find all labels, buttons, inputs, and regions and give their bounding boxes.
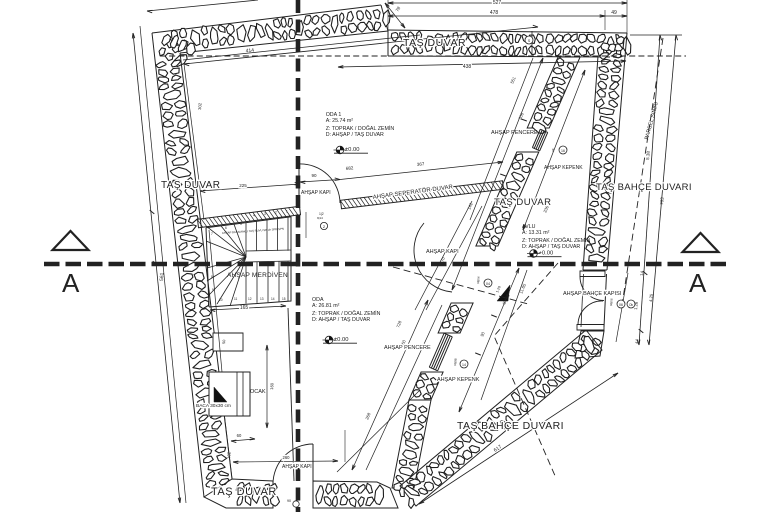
svg-text:11: 11 [234, 297, 238, 301]
svg-text:1: 1 [286, 209, 288, 213]
svg-text:Z: TOPRAK / DOĞAL ZEMİN: Z: TOPRAK / DOĞAL ZEMİN [326, 125, 395, 132]
svg-text:AHŞAP KAPI: AHŞAP KAPI [426, 249, 459, 255]
svg-text:16: 16 [561, 149, 565, 153]
svg-text:AHŞAP KAPI: AHŞAP KAPI [301, 190, 331, 196]
svg-text:9: 9 [212, 288, 214, 292]
svg-text:A: 25.74 m²: A: 25.74 m² [326, 118, 354, 124]
svg-text:478: 478 [490, 10, 499, 16]
svg-text:438: 438 [463, 64, 472, 70]
svg-text:A: 13.31 m²: A: 13.31 m² [522, 230, 550, 236]
svg-text:TAŞ BAHÇE DUVARI: TAŞ BAHÇE DUVARI [457, 420, 564, 432]
svg-text:96|06: 96|06 [609, 298, 614, 306]
svg-text:4.25: 4.25 [648, 293, 654, 302]
svg-text:06: 06 [619, 303, 623, 307]
svg-text:±0.00: ±0.00 [345, 147, 359, 153]
svg-text:08|04: 08|04 [476, 276, 481, 284]
svg-text:D: AHŞAP / TAŞ DUVAR: D: AHŞAP / TAŞ DUVAR [312, 317, 370, 323]
svg-text:D: AHŞAP / TAŞ DUVAR: D: AHŞAP / TAŞ DUVAR [326, 132, 384, 138]
svg-text:OCAK: OCAK [250, 389, 266, 395]
svg-text:A: A [689, 268, 707, 298]
svg-text:6: 6 [225, 226, 227, 230]
svg-text:10: 10 [219, 298, 223, 302]
svg-text:2: 2 [275, 211, 277, 215]
svg-text:9|14: 9|14 [317, 216, 323, 220]
svg-text:527: 527 [493, 0, 502, 6]
svg-text:06|98: 06|98 [453, 358, 458, 366]
svg-text:AHŞAP KEPENK: AHŞAP KEPENK [437, 377, 480, 383]
svg-text:60: 60 [237, 433, 242, 438]
svg-text:49: 49 [611, 10, 617, 16]
svg-text:AHŞAP KEPENK: AHŞAP KEPENK [544, 165, 583, 171]
svg-text:Z: TOPRAK / DOĞAL ZEMİN: Z: TOPRAK / DOĞAL ZEMİN [312, 310, 381, 317]
svg-text:±0.00: ±0.00 [334, 337, 348, 343]
svg-text:14: 14 [271, 297, 275, 301]
svg-text:AHŞAP BAHÇE KAPISI: AHŞAP BAHÇE KAPISI [563, 291, 622, 297]
svg-text:4: 4 [253, 214, 255, 218]
svg-text:90: 90 [311, 173, 317, 178]
svg-text:3: 3 [264, 212, 266, 216]
svg-text:AHŞAP MERDİVEN: AHŞAP MERDİVEN [227, 270, 288, 279]
svg-text:12: 12 [248, 297, 252, 301]
svg-text:703: 703 [659, 197, 665, 205]
svg-text:14: 14 [462, 363, 466, 367]
svg-text:7: 7 [211, 232, 213, 236]
svg-text:BACA 30x30 cm: BACA 30x30 cm [196, 403, 231, 409]
svg-text:04: 04 [486, 282, 490, 286]
svg-text:TAŞ DUVAR: TAŞ DUVAR [494, 197, 551, 208]
svg-text:5: 5 [240, 222, 242, 226]
svg-text:Z: TOPRAK / DOĞAL ZEMİN: Z: TOPRAK / DOĞAL ZEMİN [522, 237, 591, 244]
svg-text:13: 13 [260, 297, 264, 301]
svg-text:160: 160 [269, 382, 275, 390]
svg-text:TAŞ DUVAR: TAŞ DUVAR [161, 180, 220, 191]
svg-text:A: A [62, 268, 80, 298]
svg-text:8: 8 [211, 275, 213, 279]
svg-text:225: 225 [239, 183, 247, 188]
svg-text:15: 15 [282, 297, 286, 301]
svg-text:TAŞ DUVAR: TAŞ DUVAR [403, 37, 466, 49]
svg-text:+0.00: +0.00 [539, 251, 554, 257]
svg-text:TAŞ BAHÇE DUVARI: TAŞ BAHÇE DUVARI [596, 182, 692, 193]
svg-text:5.38: 5.38 [645, 150, 651, 160]
svg-text:A: 26.81 m²: A: 26.81 m² [312, 303, 340, 309]
svg-text:AHŞAP KAPI: AHŞAP KAPI [282, 464, 312, 470]
svg-text:Ok: Ok [629, 303, 633, 307]
svg-text:50: 50 [222, 340, 226, 345]
svg-text:AHŞAP PENCERE: AHŞAP PENCERE [491, 130, 538, 136]
svg-text:D: AHŞAP / TAŞ DUVAR: D: AHŞAP / TAŞ DUVAR [522, 244, 580, 250]
svg-text:TAŞ DUVAR: TAŞ DUVAR [211, 486, 277, 498]
svg-text:AHŞAP PENCERE: AHŞAP PENCERE [384, 345, 431, 351]
svg-text:367: 367 [417, 161, 425, 167]
svg-text:682: 682 [346, 165, 354, 171]
svg-text:260: 260 [283, 455, 291, 460]
svg-text:165: 165 [240, 305, 249, 311]
svg-text:90: 90 [287, 499, 291, 503]
svg-text:302: 302 [197, 102, 203, 110]
